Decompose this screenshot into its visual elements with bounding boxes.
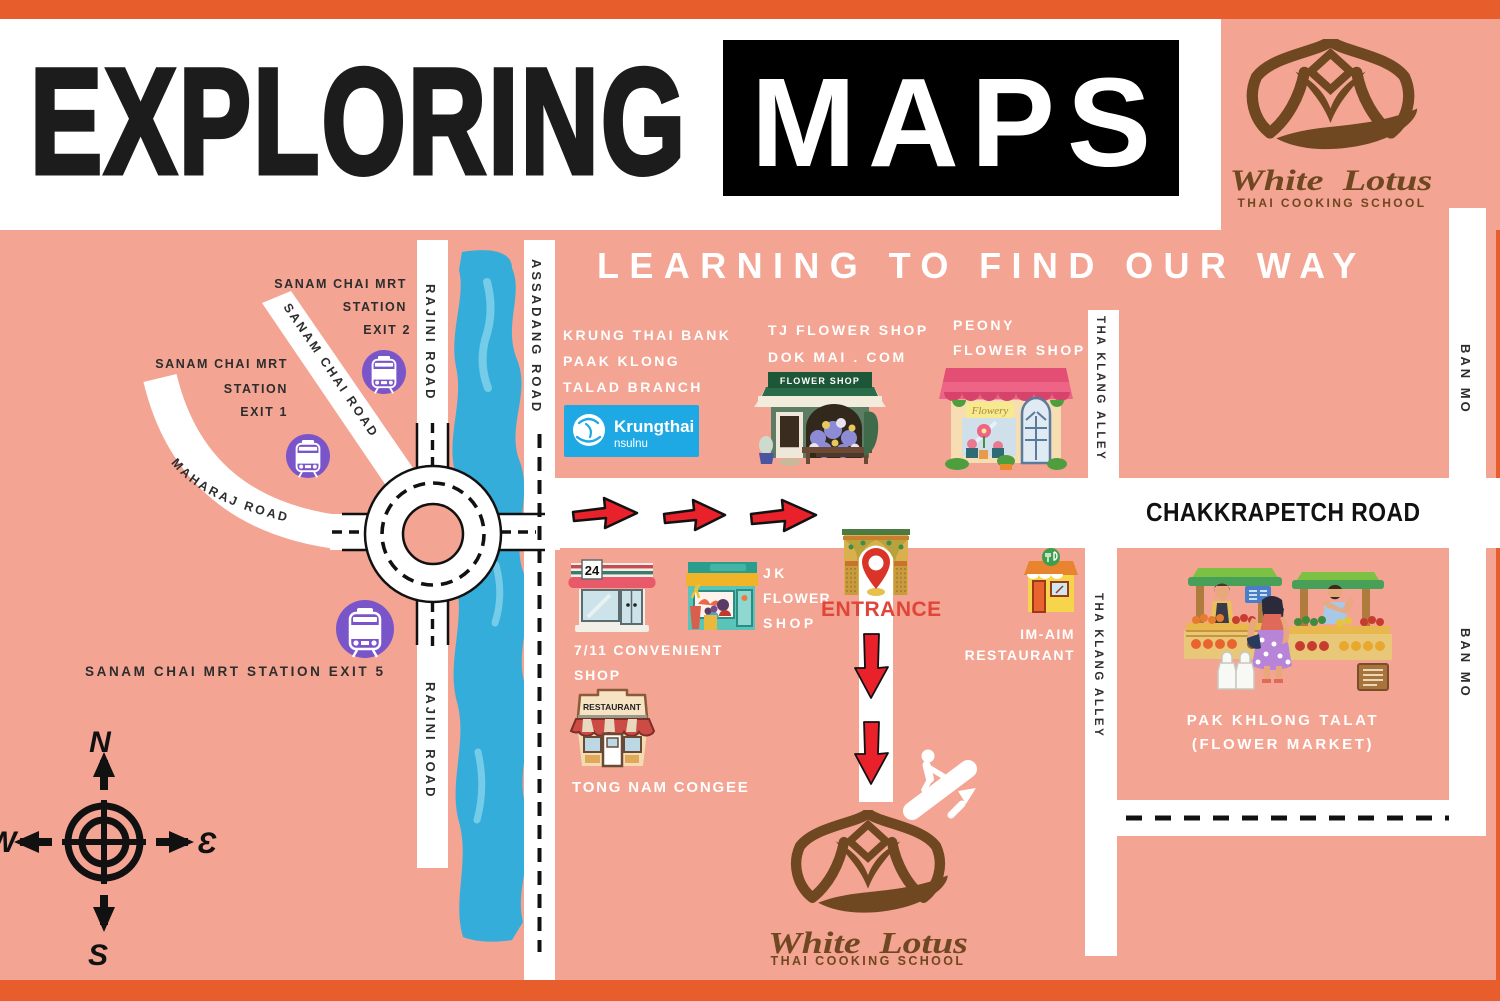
svg-text:nsulnu: nsulnu: [614, 438, 648, 450]
svg-text:Flowery: Flowery: [971, 405, 1009, 417]
svg-text:FLOWER SHOP: FLOWER SHOP: [780, 376, 860, 386]
svg-text:RESTAURANT: RESTAURANT: [583, 702, 642, 712]
svg-text:24: 24: [585, 563, 600, 578]
svg-text:Krungthai: Krungthai: [614, 417, 694, 436]
